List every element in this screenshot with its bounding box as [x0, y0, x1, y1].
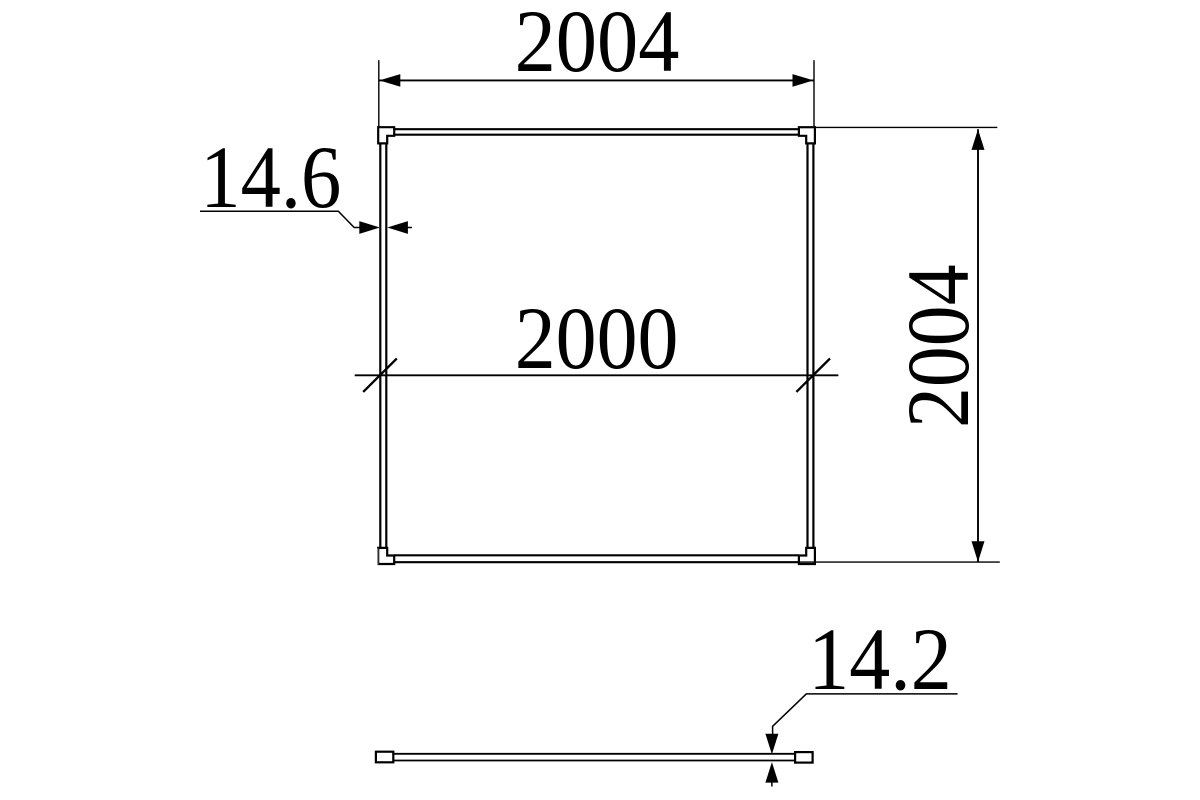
svg-text:2000: 2000 — [515, 290, 679, 388]
svg-text:14.2: 14.2 — [808, 611, 952, 709]
svg-text:2004: 2004 — [890, 264, 988, 428]
svg-text:2004: 2004 — [515, 0, 680, 91]
svg-text:14.6: 14.6 — [200, 129, 341, 227]
